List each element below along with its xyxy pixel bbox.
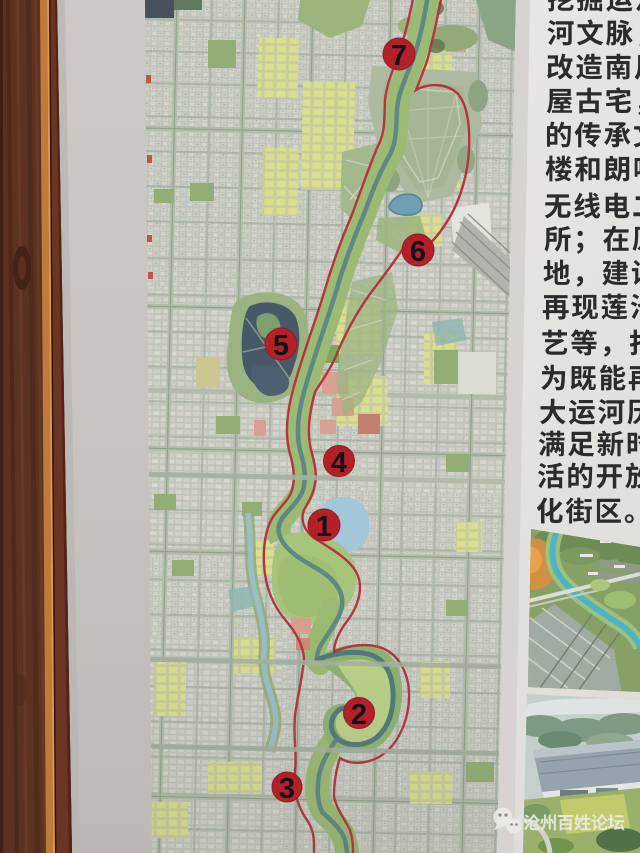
- svg-text:6: 6: [410, 236, 426, 268]
- svg-text:4: 4: [331, 447, 347, 479]
- svg-text:3: 3: [279, 773, 295, 805]
- svg-text:7: 7: [391, 40, 407, 72]
- svg-text:2: 2: [351, 699, 367, 731]
- svg-text:5: 5: [273, 330, 289, 362]
- svg-text:1: 1: [316, 511, 332, 543]
